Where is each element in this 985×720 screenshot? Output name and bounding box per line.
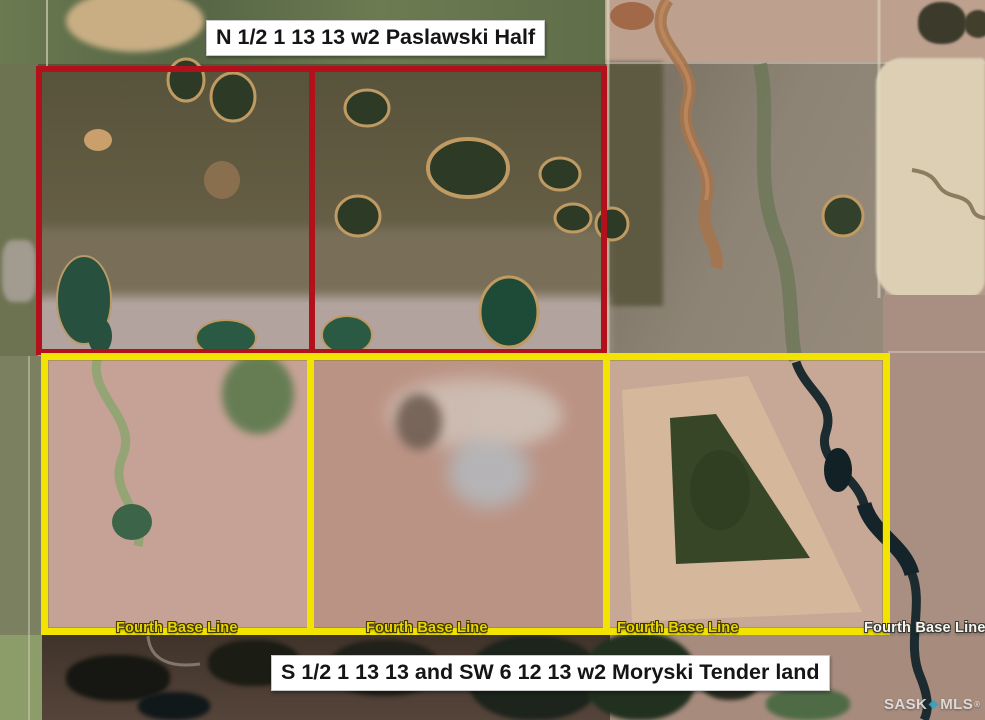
south-parcel-quarter-divider	[603, 353, 610, 635]
north-parcel-quarter-divider	[309, 66, 315, 355]
cream-field-swirl	[912, 170, 985, 218]
north-parcel-boundary	[36, 66, 607, 355]
sask-mls-watermark: SASK MLS ®	[884, 696, 980, 713]
pond	[138, 692, 210, 720]
road-label-fourth-base-line: Fourth Base Line	[864, 620, 985, 636]
south-parcel-quarter-divider	[307, 353, 314, 635]
south-parcel-boundary	[41, 353, 890, 635]
watermark-sask: SASK	[884, 696, 927, 713]
satellite-map: Fourth Base Line Fourth Base Line Fourth…	[0, 0, 985, 720]
road-label-fourth-base-line: Fourth Base Line	[116, 620, 238, 636]
watermark-mls: MLS	[940, 696, 973, 713]
pond	[823, 196, 863, 236]
road-label-fourth-base-line: Fourth Base Line	[617, 620, 739, 636]
south-parcel-title: S 1/2 1 13 13 and SW 6 12 13 w2 Moryski …	[271, 655, 830, 691]
vegetated-draw	[760, 64, 796, 360]
green-patch	[766, 688, 850, 720]
mls-diamond-icon	[929, 700, 939, 710]
rust-patch	[610, 2, 654, 30]
registered-symbol: ®	[974, 700, 980, 709]
road-label-fourth-base-line: Fourth Base Line	[366, 620, 488, 636]
north-parcel-title: N 1/2 1 13 13 w2 Paslawski Half	[206, 20, 545, 56]
